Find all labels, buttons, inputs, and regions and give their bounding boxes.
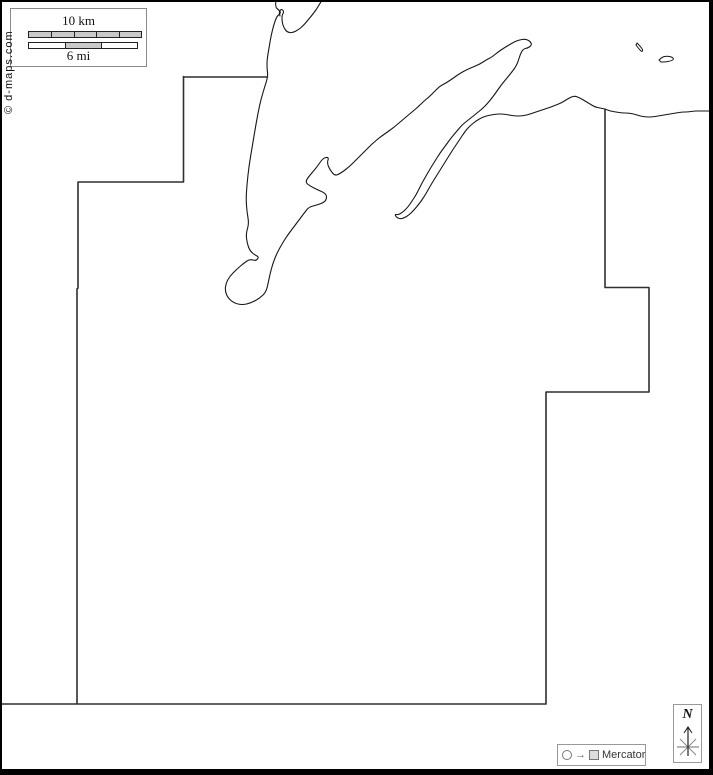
county-outline-map [0, 0, 713, 775]
scale-tick [74, 32, 75, 37]
compass-north-label: N [674, 708, 701, 722]
county-boundary-south-east [0, 109, 649, 704]
scale-tick [96, 32, 97, 37]
arrow-right-icon: → [575, 750, 586, 761]
compass-rose: N [673, 704, 702, 763]
scale-mi-label: 6 mi [11, 49, 146, 62]
scale-km-bar [28, 31, 142, 38]
circle-icon [562, 750, 572, 760]
projection-label: Mercator [602, 749, 645, 761]
scale-tick [101, 43, 102, 48]
islet-small [636, 43, 643, 51]
map-canvas: 10 km 6 mi © d-maps.com → Mercator N [0, 0, 713, 775]
projection-legend: → Mercator [557, 744, 646, 766]
scale-bar: 10 km 6 mi [10, 8, 147, 67]
square-icon [589, 750, 599, 760]
coastline-spit [279, 0, 322, 33]
scale-tick [65, 43, 66, 48]
credit-watermark: © d-maps.com [3, 30, 15, 114]
compass-star-icon [676, 723, 700, 758]
county-boundary-west [77, 77, 184, 704]
scale-tick [51, 32, 52, 37]
islet-oval [659, 56, 673, 62]
scale-tick [119, 32, 120, 37]
scale-km-label: 10 km [11, 14, 146, 27]
